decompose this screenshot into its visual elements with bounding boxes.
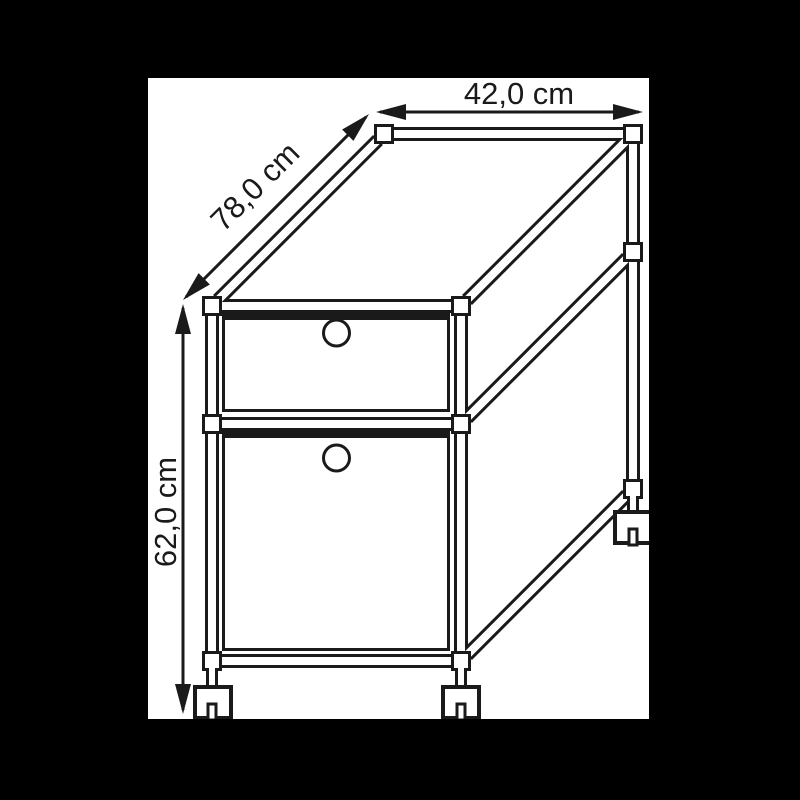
- height-dimension-label: 62,0 cm: [148, 457, 183, 567]
- caster-front-left: [195, 668, 231, 719]
- top-drawer-handle-icon: [324, 320, 350, 346]
- bottom-drawer: [222, 431, 450, 650]
- depth-dimension: 78,0 cm: [177, 108, 374, 305]
- drawing-canvas: 42,0 cm 78,0 cm 62,0 cm: [148, 78, 649, 719]
- width-dimension: 42,0 cm: [376, 78, 643, 120]
- arrowhead-up-icon: [175, 304, 191, 334]
- arrowhead-right-icon: [613, 104, 643, 120]
- arrowhead-down-icon: [175, 684, 191, 714]
- width-dimension-label: 42,0 cm: [464, 78, 574, 111]
- top-drawer: [222, 313, 450, 411]
- arrowhead-left-icon: [376, 104, 406, 120]
- caster-front-right: [443, 668, 479, 719]
- product-dimension-drawing: 42,0 cm 78,0 cm 62,0 cm: [148, 78, 649, 719]
- image-viewer-background: 42,0 cm 78,0 cm 62,0 cm: [0, 0, 800, 800]
- bottom-drawer-handle-icon: [324, 445, 350, 471]
- height-dimension: 62,0 cm: [148, 304, 191, 714]
